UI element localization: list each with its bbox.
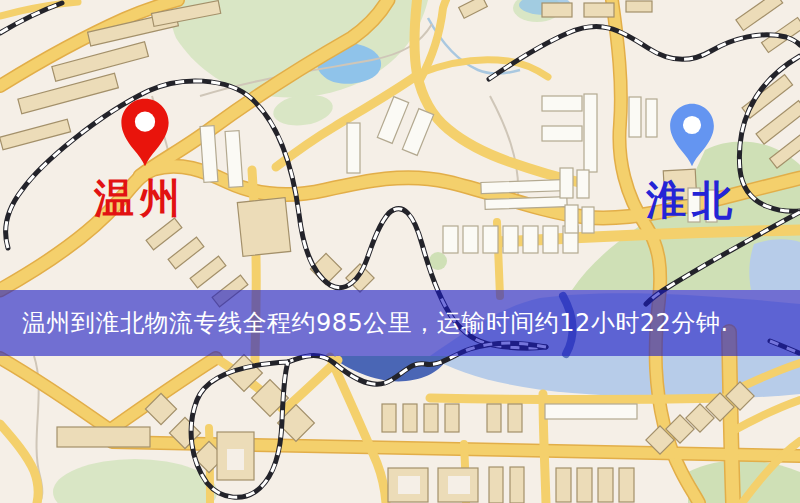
pin-body xyxy=(121,99,168,167)
route-info-banner: 温州到淮北物流专线全程约985公里，运输时间约12小时22分钟. xyxy=(0,290,800,356)
map-viewport[interactable]: 温州 淮北 温州到淮北物流专线全程约985公里，运输时间约12小时22分钟. xyxy=(0,0,800,503)
pin-body xyxy=(670,104,714,167)
origin-city-label: 温州 xyxy=(94,176,186,220)
destination-city-label: 淮北 xyxy=(646,178,738,222)
pin-hole xyxy=(135,112,155,132)
destination-pin[interactable] xyxy=(667,102,717,168)
pin-hole xyxy=(683,116,701,134)
destination-pin-icon xyxy=(667,102,717,168)
origin-pin-icon xyxy=(118,97,172,168)
origin-pin[interactable] xyxy=(118,97,172,168)
route-info-text: 温州到淮北物流专线全程约985公里，运输时间约12小时22分钟. xyxy=(22,309,729,337)
map-background xyxy=(0,0,800,503)
